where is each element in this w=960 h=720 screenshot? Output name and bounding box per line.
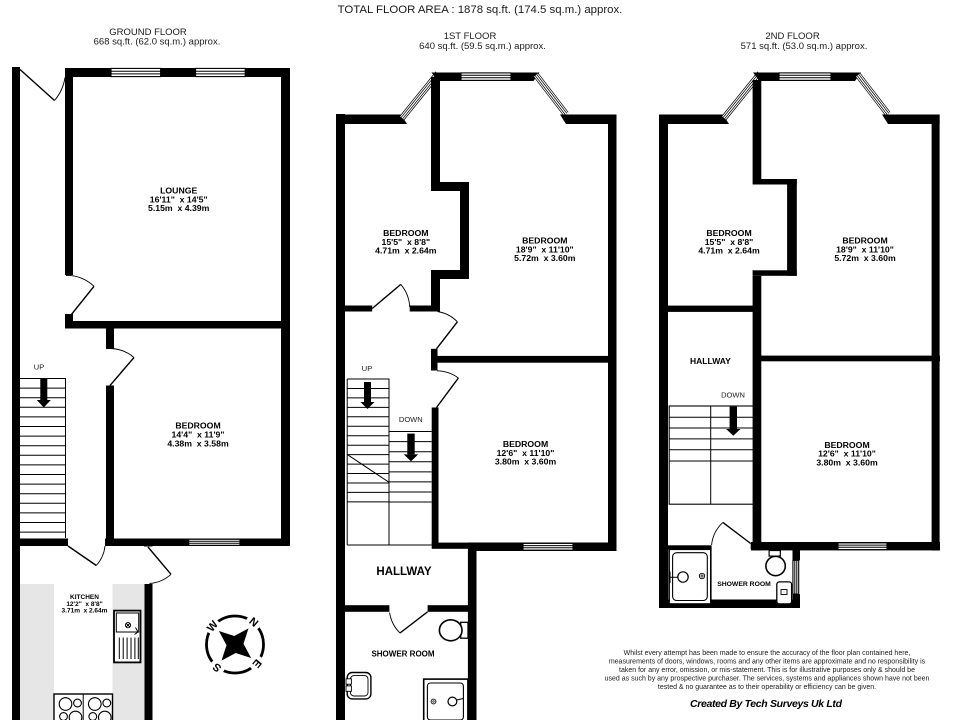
svg-text:Whilst every attempt has been: Whilst every attempt has been made to en… bbox=[624, 650, 911, 657]
svg-text:measurements of doors, windows: measurements of doors, windows, rooms an… bbox=[609, 659, 926, 666]
svg-text:TOTAL FLOOR AREA : 1878 sq.ft.: TOTAL FLOOR AREA : 1878 sq.ft. (174.5 sq… bbox=[338, 4, 623, 16]
svg-text:UP: UP bbox=[362, 364, 372, 373]
svg-text:SHOWER ROOM: SHOWER ROOM bbox=[717, 581, 771, 588]
svg-text:DOWN: DOWN bbox=[399, 415, 423, 424]
svg-text:571 sq.ft. (53.0 sq.m.) approx: 571 sq.ft. (53.0 sq.m.) approx. bbox=[741, 41, 868, 52]
svg-text:3.80m x 3.60m: 3.80m x 3.60m bbox=[816, 457, 878, 467]
svg-text:4.71m x 2.64m: 4.71m x 2.64m bbox=[698, 246, 760, 256]
svg-text:used as such by any prospectiv: used as such by any prospective purchase… bbox=[605, 676, 930, 683]
svg-text:5.72m x 3.60m: 5.72m x 3.60m bbox=[834, 253, 896, 263]
svg-text:Created By Tech Surveys Uk Ltd: Created By Tech Surveys Uk Ltd bbox=[690, 698, 843, 710]
svg-text:UP: UP bbox=[34, 363, 44, 372]
svg-text:HALLWAY: HALLWAY bbox=[690, 356, 731, 366]
svg-text:668 sq.ft. (62.0 sq.m.) approx: 668 sq.ft. (62.0 sq.m.) approx. bbox=[94, 37, 221, 48]
svg-text:4.71m x 2.64m: 4.71m x 2.64m bbox=[375, 246, 437, 256]
svg-text:5.15m x 4.39m: 5.15m x 4.39m bbox=[148, 203, 210, 213]
svg-text:KITCHEN: KITCHEN bbox=[70, 594, 99, 601]
svg-text:HALLWAY: HALLWAY bbox=[376, 566, 431, 578]
svg-text:DOWN: DOWN bbox=[721, 390, 745, 399]
svg-text:5.72m x 3.60m: 5.72m x 3.60m bbox=[514, 253, 576, 263]
svg-text:SHOWER ROOM: SHOWER ROOM bbox=[371, 650, 434, 659]
svg-text:4.38m x 3.58m: 4.38m x 3.58m bbox=[167, 438, 229, 448]
svg-text:640 sq.ft. (59.5 sq.m.) approx: 640 sq.ft. (59.5 sq.m.) approx. bbox=[419, 41, 546, 52]
svg-text:tested & no guarantee as to th: tested & no guarantee as to their operab… bbox=[658, 684, 876, 691]
svg-text:3.80m x 3.60m: 3.80m x 3.60m bbox=[495, 457, 557, 467]
svg-text:3.71m x 2.64m: 3.71m x 2.64m bbox=[62, 608, 108, 615]
svg-text:taken for any error, omission,: taken for any error, omission, or mis-st… bbox=[619, 667, 915, 674]
